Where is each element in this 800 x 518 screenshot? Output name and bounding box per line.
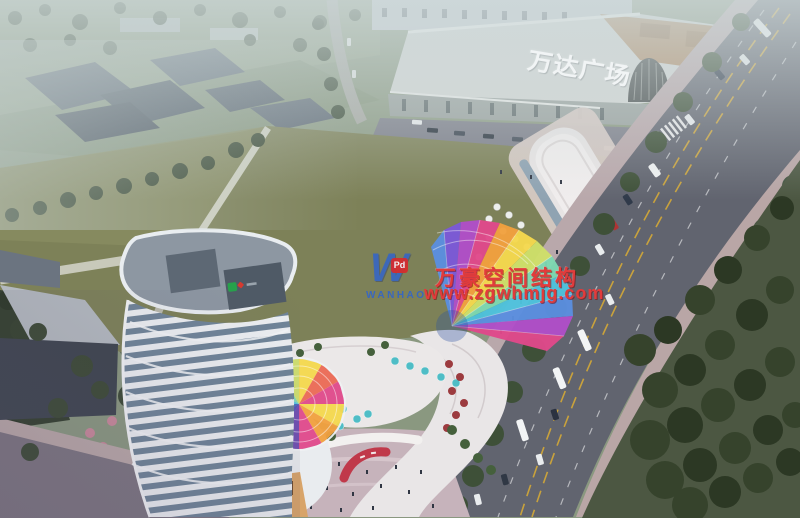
watermark-logo-badge: Pd: [391, 258, 408, 273]
watermark-logo-wordmark: WANHAO: [366, 290, 427, 301]
watermark-website: www.zgwhmjg.com: [424, 283, 604, 304]
aerial-architectural-rendering: 万达广场 W Pd WANHAO 万豪空间结构 www.zgwhmjg.com: [0, 0, 800, 518]
watermark: W Pd WANHAO 万豪空间结构 www.zgwhmjg.com: [364, 252, 614, 308]
